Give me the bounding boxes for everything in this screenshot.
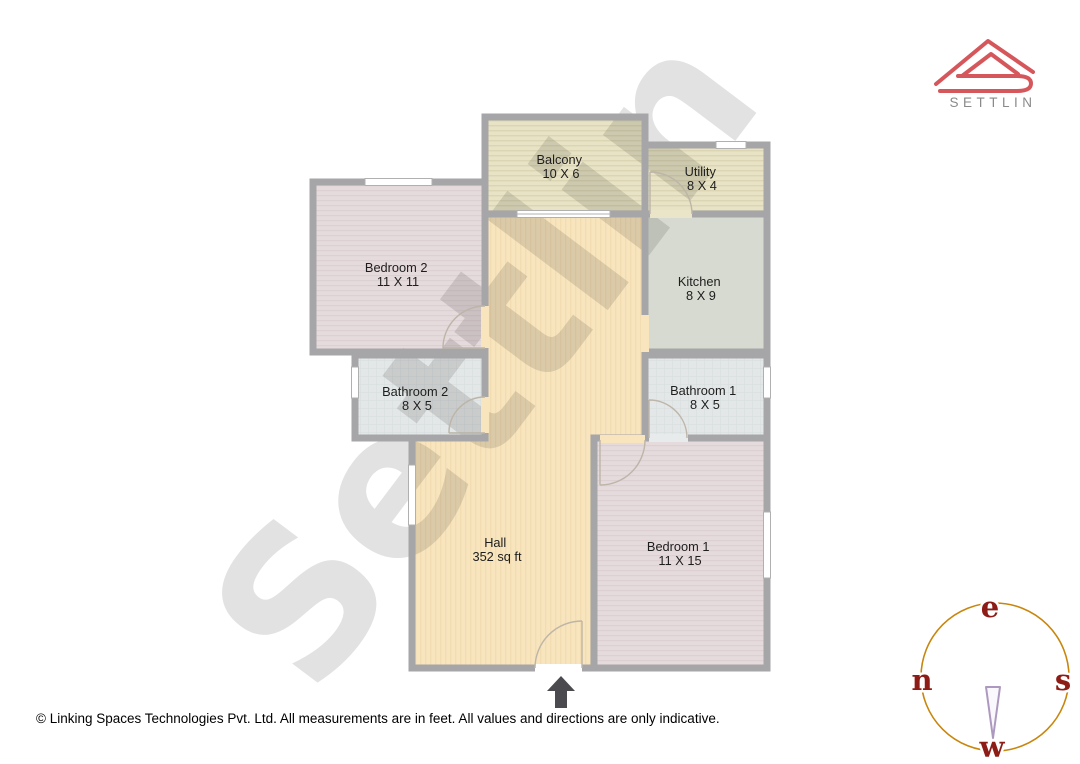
- brand-name: SETTLIN: [949, 95, 1036, 110]
- compass-rose-icon: e n s w: [911, 590, 1071, 764]
- settlin-logo: SETTLIN: [936, 41, 1037, 110]
- compass-south-label: s: [1055, 663, 1071, 697]
- window: [409, 465, 416, 525]
- footer-disclaimer: © Linking Spaces Technologies Pvt. Ltd. …: [36, 711, 720, 726]
- room-label-utility: Utility 8 X 4: [685, 164, 720, 193]
- entry-arrow-icon: [547, 676, 575, 708]
- compass-north-label: n: [911, 663, 932, 697]
- window: [764, 512, 771, 578]
- page: Settlin: [0, 0, 1080, 764]
- window: [352, 367, 359, 398]
- room-label-balcony: Balcony 10 X 6: [536, 152, 585, 181]
- settlin-logo-icon: [936, 41, 1033, 91]
- compass-east-label: e: [981, 590, 999, 624]
- floorplan-canvas: Settlin: [0, 0, 1080, 764]
- window: [365, 179, 432, 186]
- compass-west-label: w: [979, 730, 1006, 764]
- window: [764, 367, 771, 398]
- window: [716, 142, 746, 149]
